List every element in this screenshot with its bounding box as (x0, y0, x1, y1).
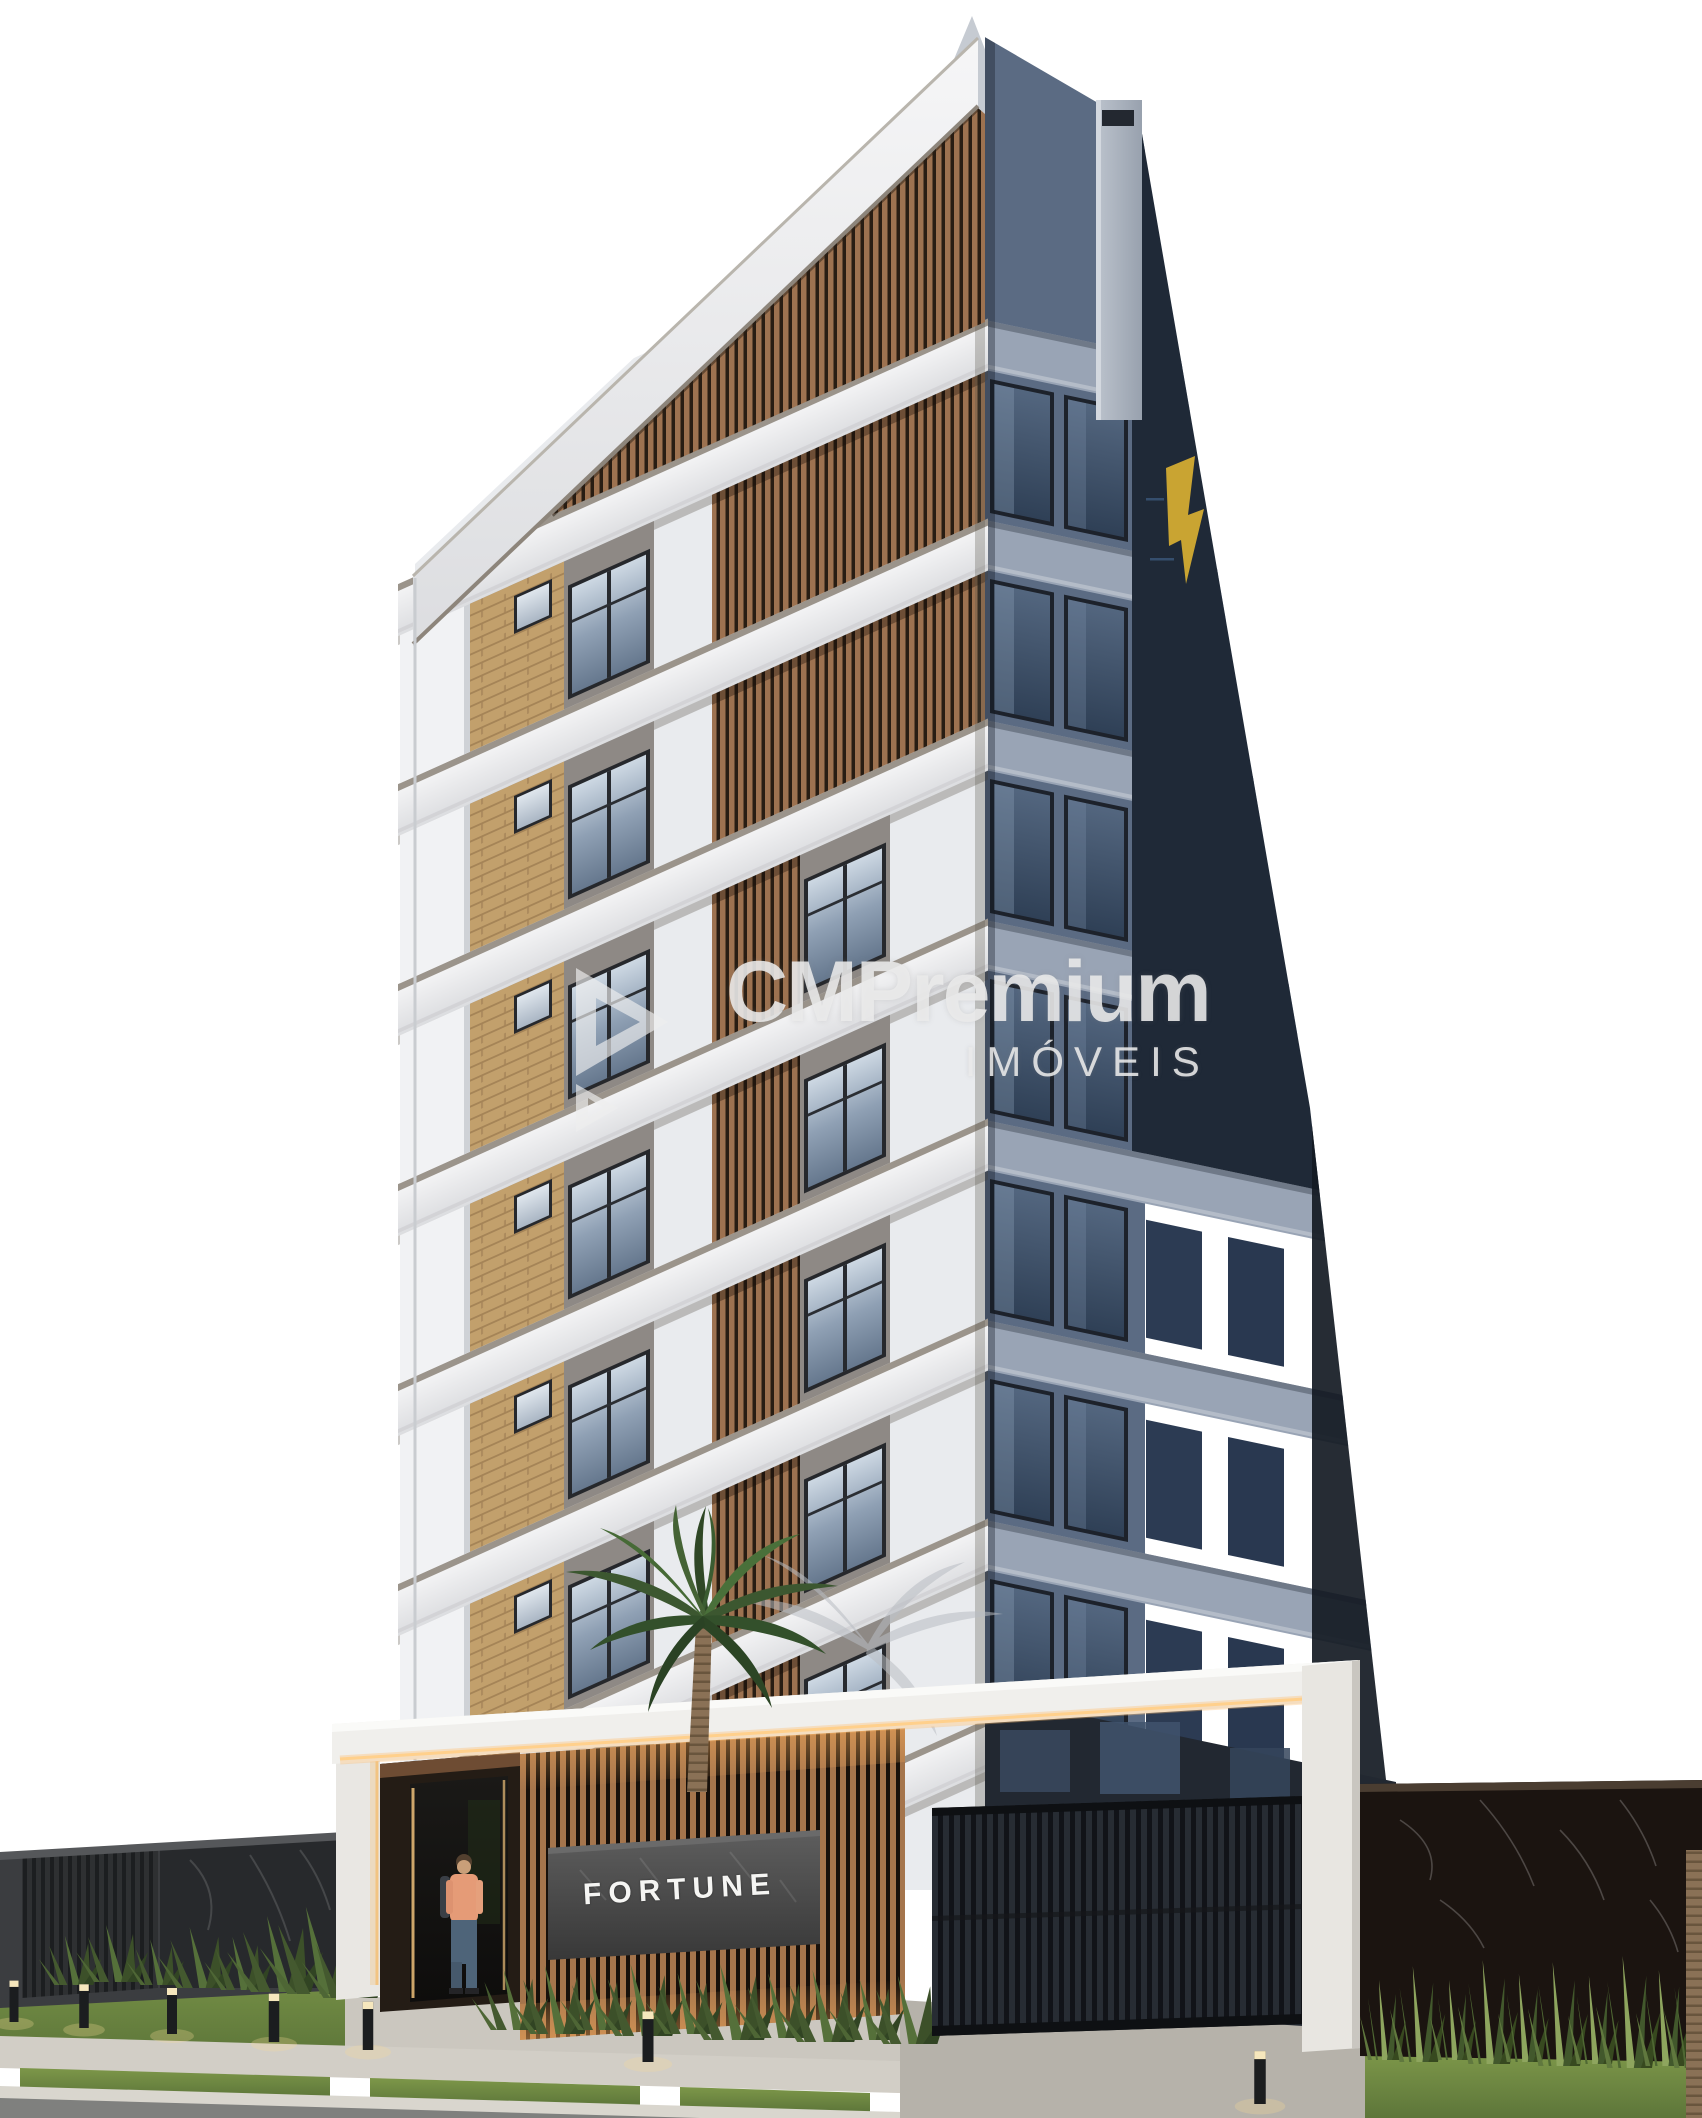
fortune-sign-panel (548, 1830, 820, 1960)
architectural-render: CMPremium IMÓVEIS FORTUNE (0, 0, 1702, 2118)
palm-trunk-right (1686, 1850, 1702, 2118)
entry-gate (932, 1796, 1302, 2036)
navy-rear-wall (1132, 0, 1422, 1212)
portal-column-right (1302, 1660, 1360, 2052)
render-scene (0, 0, 1702, 2118)
marble-wall-right (1360, 1780, 1702, 2062)
chimney (1096, 100, 1142, 420)
